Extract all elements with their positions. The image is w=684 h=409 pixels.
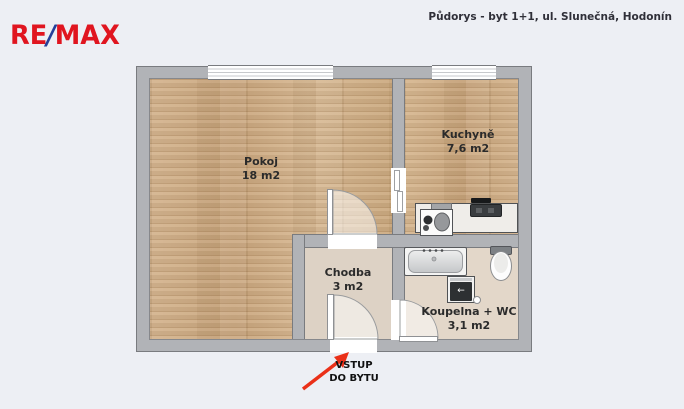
entrance-label-line1: VSTUP	[329, 359, 379, 372]
window-pokoj	[208, 65, 333, 80]
kitchen-sink-cabinet	[420, 209, 453, 236]
doorway-koupelna	[391, 300, 406, 340]
doorway-entrance	[330, 337, 377, 353]
doorjamb-icon	[394, 170, 400, 191]
room-name: Pokoj	[242, 155, 280, 169]
stove-knob	[476, 208, 482, 213]
doorjamb-icon	[397, 191, 403, 212]
bathtub-basin	[408, 250, 463, 273]
floorplan-page: RE/MAX Půdorys - byt 1+1, ul. Slunečná, …	[0, 0, 684, 409]
door-leaf-entrance	[327, 294, 334, 340]
door-leaf-pokoj	[327, 189, 333, 235]
room-name: Koupelna + WC	[421, 305, 516, 319]
doorway-pokoj-chodba	[328, 233, 377, 249]
stove-hood	[471, 198, 491, 203]
stove	[470, 204, 502, 217]
room-name: Kuchyně	[442, 128, 495, 142]
page-title: Půdorys - byt 1+1, ul. Slunečná, Hodonín	[428, 11, 672, 23]
room-area: 7,6 m2	[442, 142, 495, 156]
stove-knob	[488, 208, 494, 213]
room-label-koupelna: Koupelna + WC 3,1 m2	[421, 305, 516, 333]
window-kuchyne	[432, 65, 496, 80]
room-label-kuchyne: Kuchyně 7,6 m2	[442, 128, 495, 156]
door-leaf-koupelna	[399, 336, 438, 342]
entrance-label: VSTUP DO BYTU	[329, 359, 379, 385]
room-name: Chodba	[325, 266, 372, 280]
room-label-pokoj: Pokoj 18 m2	[242, 155, 280, 183]
remax-logo: RE/MAX	[10, 20, 120, 51]
entrance-label-line2: DO BYTU	[329, 372, 379, 385]
washing-machine-top	[450, 278, 472, 281]
room-area: 3,1 m2	[421, 319, 516, 333]
room-area: 3 m2	[325, 280, 372, 294]
room-area: 18 m2	[242, 169, 280, 183]
logo-re-text: RE	[10, 20, 47, 51]
logo-max-text: MAX	[55, 20, 120, 51]
room-label-chodba: Chodba 3 m2	[325, 266, 372, 294]
washing-machine-door: ←	[450, 282, 472, 301]
toilet-tank	[490, 246, 512, 255]
